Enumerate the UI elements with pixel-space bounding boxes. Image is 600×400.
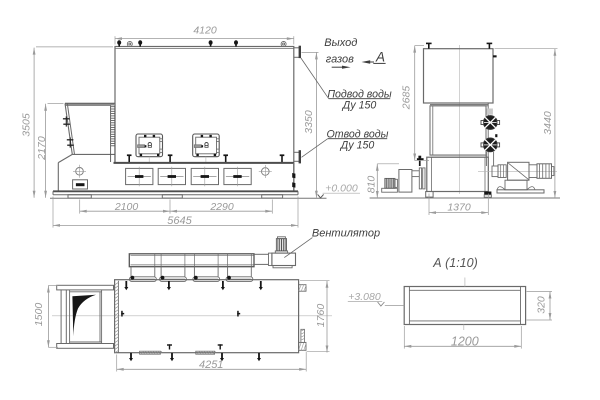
svg-text:1760: 1760 bbox=[315, 304, 327, 328]
svg-text:А: А bbox=[375, 50, 385, 65]
svg-text:А (1:10): А (1:10) bbox=[432, 256, 477, 270]
svg-text:Ду 150: Ду 150 bbox=[342, 100, 377, 112]
svg-text:2290: 2290 bbox=[209, 201, 234, 213]
svg-text:Ду 150: Ду 150 bbox=[340, 140, 375, 152]
svg-text:Выход: Выход bbox=[324, 37, 357, 49]
svg-text:810: 810 bbox=[366, 176, 378, 194]
svg-text:2170: 2170 bbox=[36, 136, 48, 161]
svg-text:4251: 4251 bbox=[199, 359, 223, 371]
svg-text:2100: 2100 bbox=[114, 201, 139, 213]
svg-text:1500: 1500 bbox=[33, 303, 45, 327]
svg-text:320: 320 bbox=[536, 296, 548, 314]
svg-text:5645: 5645 bbox=[167, 215, 192, 227]
svg-text:3350: 3350 bbox=[303, 110, 315, 134]
svg-text:Вентилятор: Вентилятор bbox=[312, 228, 380, 240]
svg-text:1200: 1200 bbox=[451, 335, 479, 349]
svg-text:3440: 3440 bbox=[542, 111, 554, 135]
svg-text:1370: 1370 bbox=[447, 201, 471, 213]
svg-text:газов: газов bbox=[326, 53, 354, 65]
svg-text:4120: 4120 bbox=[193, 25, 217, 37]
svg-text:2685: 2685 bbox=[401, 86, 413, 111]
svg-text:3505: 3505 bbox=[21, 113, 33, 137]
